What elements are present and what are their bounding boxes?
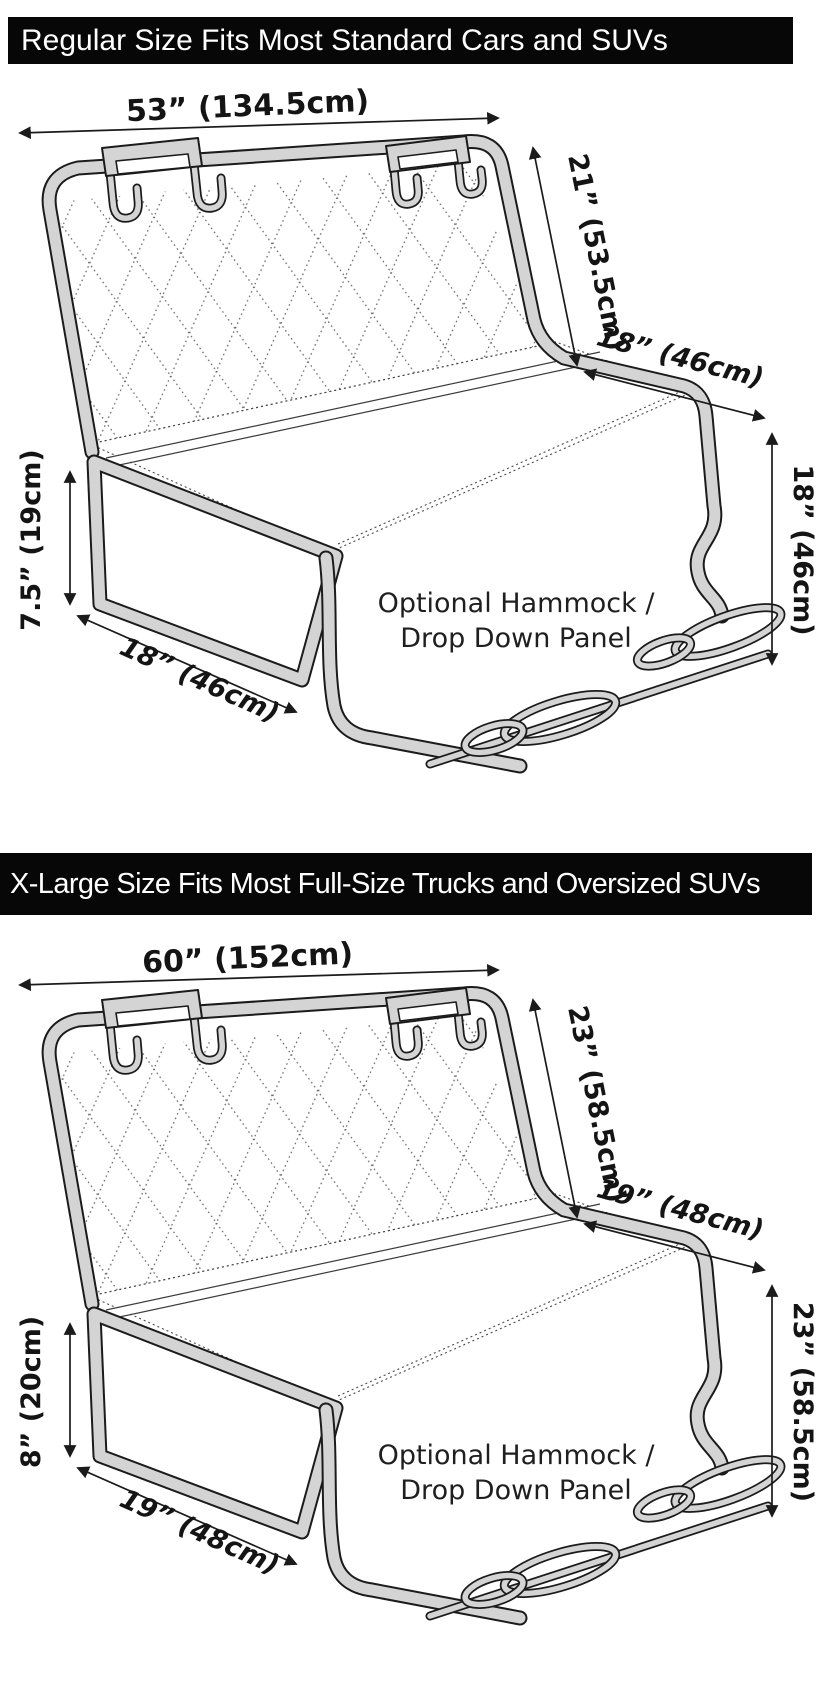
width-dimension-label: 60” (152cm) bbox=[141, 936, 353, 980]
hammock-label-line2: Drop Down Panel bbox=[400, 623, 631, 654]
drop-height-dimension-label: 23” (58.5cm) bbox=[787, 1302, 818, 1502]
hammock-label-line1: Optional Hammock / bbox=[378, 1440, 656, 1471]
seat-cover-illustration bbox=[20, 970, 786, 1618]
xlarge-size-banner: X-Large Size Fits Most Full-Size Trucks … bbox=[0, 853, 812, 915]
drop-height-dimension-label: 18” (46cm) bbox=[787, 464, 818, 635]
flap-height-dimension-label: 8” (20cm) bbox=[16, 1316, 47, 1468]
seat-cover-diagram-regular: 53” (134.5cm) 21” (53.5cm) 18” (46cm) 18… bbox=[0, 72, 828, 812]
hammock-label-line1: Optional Hammock / bbox=[378, 588, 656, 619]
product-size-infographic: { "page": { "background": "#ffffff", "ba… bbox=[0, 0, 828, 1686]
regular-size-banner: Regular Size Fits Most Standard Cars and… bbox=[8, 17, 793, 64]
back-height-dimension-label: 21” (53.5cm) bbox=[561, 151, 631, 353]
seat-cover-illustration bbox=[20, 118, 786, 766]
back-height-dimension-label: 23” (58.5cm) bbox=[561, 1003, 631, 1205]
seat-cover-diagram-xlarge: 60” (152cm) 23” (58.5cm) 19” (48cm) 23” … bbox=[0, 924, 828, 1664]
hammock-label-line2: Drop Down Panel bbox=[400, 1475, 631, 1506]
flap-height-dimension-label: 7.5” (19cm) bbox=[16, 449, 47, 630]
